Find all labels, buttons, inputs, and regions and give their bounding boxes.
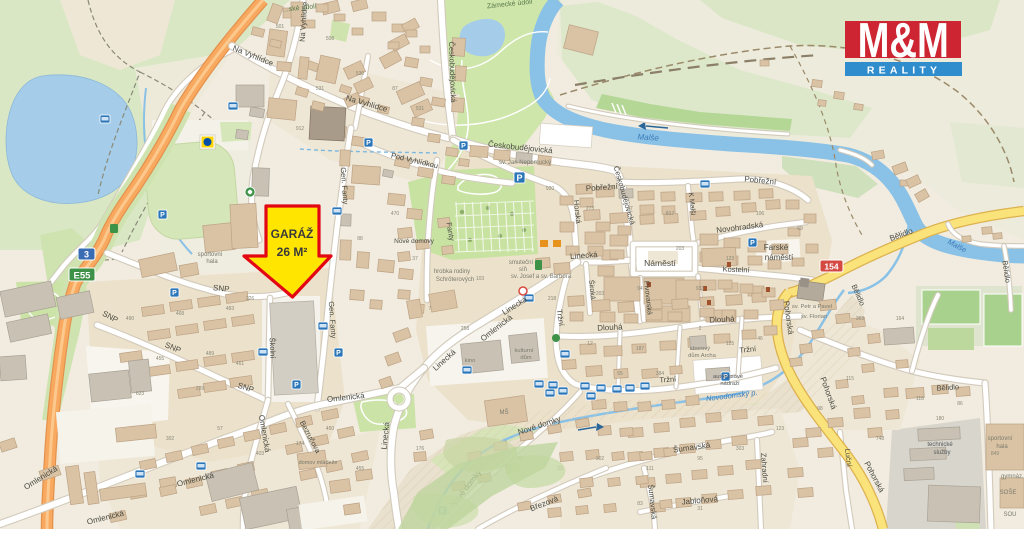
svg-text:46: 46 [757, 336, 763, 342]
svg-text:302: 302 [596, 456, 605, 462]
svg-text:kulturní: kulturní [514, 348, 533, 354]
svg-text:37: 37 [412, 256, 418, 262]
svg-text:Tržní: Tržní [739, 344, 758, 355]
svg-text:203: 203 [676, 246, 685, 252]
svg-text:174: 174 [296, 441, 305, 447]
svg-text:164: 164 [896, 316, 905, 322]
svg-text:912: 912 [296, 126, 305, 132]
svg-text:sv. Josef a sv. Barbora: sv. Josef a sv. Barbora [511, 274, 572, 280]
svg-text:118: 118 [916, 396, 924, 402]
svg-text:363: 363 [856, 316, 865, 322]
svg-text:123: 123 [776, 426, 785, 432]
svg-text:106: 106 [756, 211, 765, 217]
svg-text:Dlouhá: Dlouhá [597, 322, 623, 332]
svg-text:sv. Jan Nepomucký: sv. Jan Nepomucký [499, 160, 551, 166]
svg-text:sportovní: sportovní [988, 436, 1013, 442]
svg-text:403: 403 [256, 451, 265, 457]
svg-text:sv. Florian: sv. Florian [801, 314, 827, 320]
svg-text:Kostelní: Kostelní [722, 265, 750, 275]
svg-text:154: 154 [824, 262, 838, 272]
svg-text:P: P [172, 290, 177, 297]
svg-text:258: 258 [461, 326, 470, 332]
svg-text:748: 748 [876, 436, 885, 442]
svg-text:226: 226 [246, 296, 255, 302]
svg-text:125: 125 [726, 341, 735, 347]
svg-text:180: 180 [936, 416, 945, 422]
svg-text:88: 88 [357, 236, 363, 242]
svg-text:Farské: Farské [764, 243, 789, 252]
svg-text:P: P [336, 350, 341, 357]
svg-text:Nové domovy: Nové domovy [394, 238, 434, 245]
svg-text:455: 455 [356, 466, 365, 472]
svg-text:7: 7 [429, 306, 432, 312]
svg-text:služby: služby [933, 450, 950, 456]
svg-text:sborový: sborový [690, 346, 710, 352]
svg-text:123: 123 [726, 256, 735, 262]
svg-text:933: 933 [696, 286, 705, 292]
svg-text:115: 115 [846, 376, 854, 382]
svg-text:531: 531 [316, 86, 325, 92]
svg-text:26 M²: 26 M² [277, 245, 308, 259]
svg-text:303: 303 [736, 446, 745, 452]
svg-text:489: 489 [206, 351, 215, 357]
svg-text:455: 455 [156, 356, 165, 362]
svg-text:817: 817 [666, 211, 675, 217]
svg-text:501: 501 [276, 24, 285, 30]
svg-text:95: 95 [697, 456, 703, 462]
svg-text:187: 187 [636, 346, 645, 352]
svg-text:REALITY: REALITY [867, 65, 941, 77]
svg-text:GARÁŽ: GARÁŽ [271, 226, 314, 241]
svg-text:hala: hala [206, 259, 218, 265]
svg-text:technické: technické [927, 442, 953, 448]
svg-text:sv. Petr a Pavel: sv. Petr a Pavel [792, 304, 832, 310]
svg-text:12: 12 [587, 341, 593, 347]
svg-text:470: 470 [391, 211, 400, 217]
svg-text:623: 623 [136, 391, 145, 397]
svg-text:94: 94 [637, 286, 643, 292]
svg-text:920: 920 [546, 186, 555, 192]
svg-text:849: 849 [991, 451, 1000, 457]
svg-text:468: 468 [176, 311, 185, 317]
svg-text:87: 87 [392, 86, 398, 92]
svg-text:203: 203 [596, 291, 605, 297]
svg-text:450: 450 [326, 426, 335, 432]
svg-text:461: 461 [236, 361, 245, 367]
svg-text:530: 530 [356, 71, 365, 77]
svg-text:kino: kino [465, 358, 476, 364]
svg-text:P: P [366, 140, 371, 147]
svg-text:dům: dům [520, 354, 531, 361]
svg-text:483: 483 [226, 306, 235, 312]
svg-text:Bělidlo: Bělidlo [936, 382, 959, 393]
svg-text:86: 86 [957, 401, 963, 407]
svg-text:domov mládeže: domov mládeže [299, 460, 338, 466]
svg-text:hrobka rodiny: hrobka rodiny [434, 269, 470, 275]
svg-text:SNP: SNP [213, 283, 230, 294]
svg-text:508: 508 [326, 36, 335, 42]
svg-text:218: 218 [548, 296, 557, 302]
svg-text:síň: síň [519, 267, 527, 273]
svg-text:P: P [294, 382, 299, 389]
svg-text:M&M: M&M [858, 14, 949, 69]
svg-text:31: 31 [697, 506, 703, 512]
svg-text:Schröterových: Schröterových [436, 277, 474, 283]
svg-text:P: P [516, 173, 522, 183]
svg-text:57: 57 [217, 426, 223, 432]
svg-text:SOŠE: SOŠE [1000, 489, 1017, 496]
svg-text:SOU: SOU [1003, 512, 1016, 518]
svg-text:nádraží: nádraží [720, 381, 740, 387]
svg-text:hala: hala [996, 444, 1008, 450]
svg-text:273: 273 [586, 206, 595, 212]
svg-text:111: 111 [646, 466, 654, 472]
svg-text:3: 3 [84, 250, 89, 260]
svg-text:531: 531 [416, 106, 425, 112]
svg-text:302: 302 [166, 436, 175, 442]
svg-text:47: 47 [627, 206, 633, 212]
svg-text:176: 176 [416, 446, 425, 452]
svg-text:Náměstí: Náměstí [644, 258, 676, 268]
svg-text:P: P [461, 143, 466, 150]
svg-text:smuteční: smuteční [509, 260, 534, 266]
svg-text:Dlouhá: Dlouhá [709, 314, 735, 324]
svg-text:103: 103 [476, 276, 485, 282]
svg-text:náměstí: náměstí [765, 253, 794, 262]
svg-text:sportovní: sportovní [198, 252, 223, 258]
svg-text:2: 2 [699, 326, 702, 332]
svg-text:98: 98 [817, 406, 823, 412]
svg-text:384: 384 [656, 371, 665, 377]
svg-text:490: 490 [126, 316, 135, 322]
svg-text:gymnáz...: gymnáz... [1001, 474, 1024, 480]
svg-text:55: 55 [617, 371, 623, 377]
svg-text:MŠ: MŠ [500, 409, 509, 416]
svg-text:69: 69 [797, 226, 803, 232]
svg-text:P: P [160, 212, 165, 219]
svg-text:P: P [750, 240, 755, 247]
svg-text:239: 239 [196, 386, 205, 392]
svg-text:Školní: Školní [268, 337, 278, 359]
svg-text:83: 83 [637, 501, 643, 507]
svg-text:E55: E55 [74, 271, 92, 282]
svg-text:dům Archa: dům Archa [688, 352, 716, 359]
svg-text:Malše: Malše [637, 132, 659, 143]
svg-text:autobusové: autobusové [713, 374, 743, 380]
